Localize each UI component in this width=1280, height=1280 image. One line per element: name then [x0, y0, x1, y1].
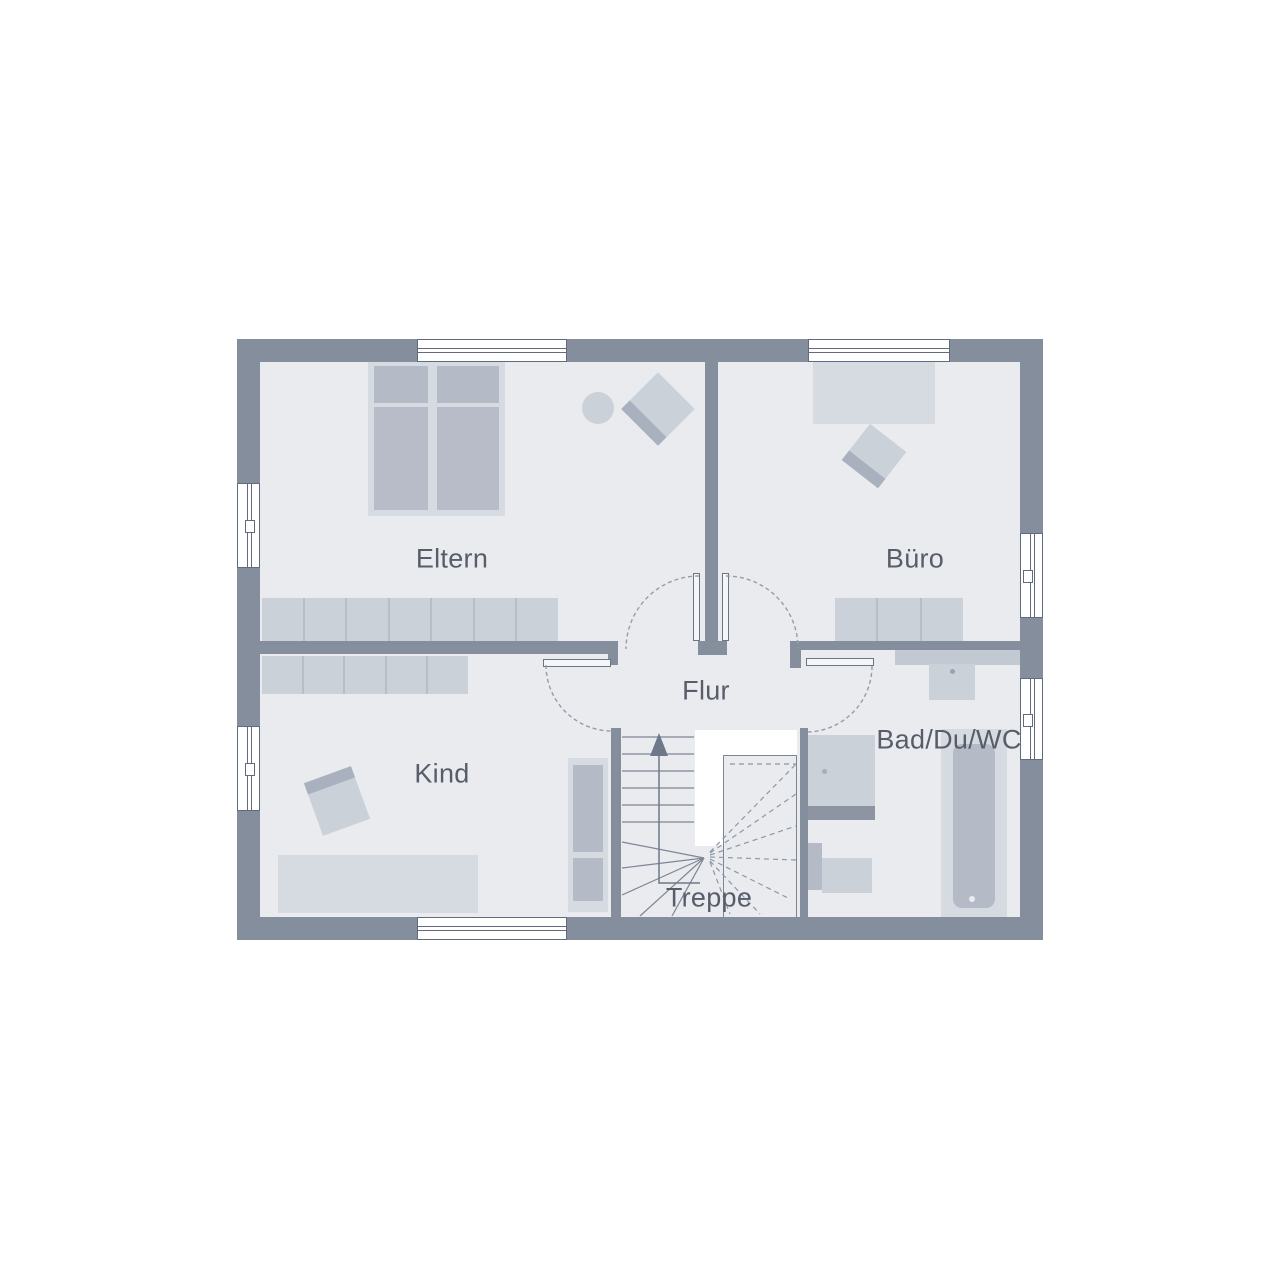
tub-drain-dot	[969, 896, 975, 902]
outer-wall-bottom	[237, 917, 1043, 940]
floor-plan-canvas: Eltern Büro Flur Kind Bad/Du/WC Treppe	[0, 0, 1280, 1280]
wardrobe-eltern	[262, 598, 558, 641]
faucet-dot	[950, 669, 955, 674]
wall-eltern-kind	[260, 641, 618, 654]
window-kind-bottom	[417, 917, 567, 940]
pillow	[437, 366, 499, 403]
pillow	[573, 858, 603, 901]
shower	[808, 735, 875, 806]
wall-buero-bad	[790, 641, 1020, 650]
stairwell-void-left	[695, 730, 723, 846]
window-buero-top	[808, 339, 950, 362]
window-kind-left	[237, 726, 260, 811]
outer-wall-left	[237, 339, 260, 940]
room-label-treppe: Treppe	[666, 883, 752, 914]
desk-office	[813, 362, 935, 424]
wall-eltern-buero	[705, 362, 718, 641]
jamb-bad-door	[790, 650, 801, 668]
door-leaf-kind	[543, 659, 611, 667]
room-label-kind: Kind	[414, 759, 469, 790]
mattress	[573, 765, 603, 852]
bath-wall-layer	[895, 650, 1020, 665]
outer-wall-right	[1020, 339, 1043, 940]
stair-wall-left	[611, 728, 621, 917]
bedside-table	[582, 392, 614, 424]
wall-center-stub	[698, 641, 727, 655]
window-bad-right	[1020, 678, 1043, 760]
bathtub	[941, 729, 1007, 917]
desk-kind	[278, 855, 478, 913]
double-bed	[368, 362, 505, 516]
single-bed	[568, 758, 608, 912]
shower-partition-wall	[800, 806, 875, 820]
wardrobe-kind	[262, 656, 468, 694]
room-label-eltern: Eltern	[416, 544, 488, 575]
mattress	[374, 407, 428, 510]
pillow	[374, 366, 428, 403]
window-buero-right	[1020, 533, 1043, 618]
room-label-flur: Flur	[682, 676, 730, 707]
drain-dot	[822, 769, 827, 774]
bathtub-inner	[953, 744, 995, 908]
window-eltern-top	[417, 339, 567, 362]
toilet	[822, 858, 872, 893]
door-leaf-bad	[806, 658, 874, 666]
door-leaf-eltern	[693, 573, 700, 641]
room-label-buero: Büro	[886, 544, 944, 575]
door-leaf-buero	[722, 573, 729, 641]
stair-wall-right	[800, 728, 808, 917]
sideboard-office	[835, 598, 963, 641]
mattress	[437, 407, 499, 510]
toilet-cistern	[808, 843, 822, 890]
window-eltern-left	[237, 483, 260, 568]
room-label-bad: Bad/Du/WC	[876, 725, 1021, 756]
